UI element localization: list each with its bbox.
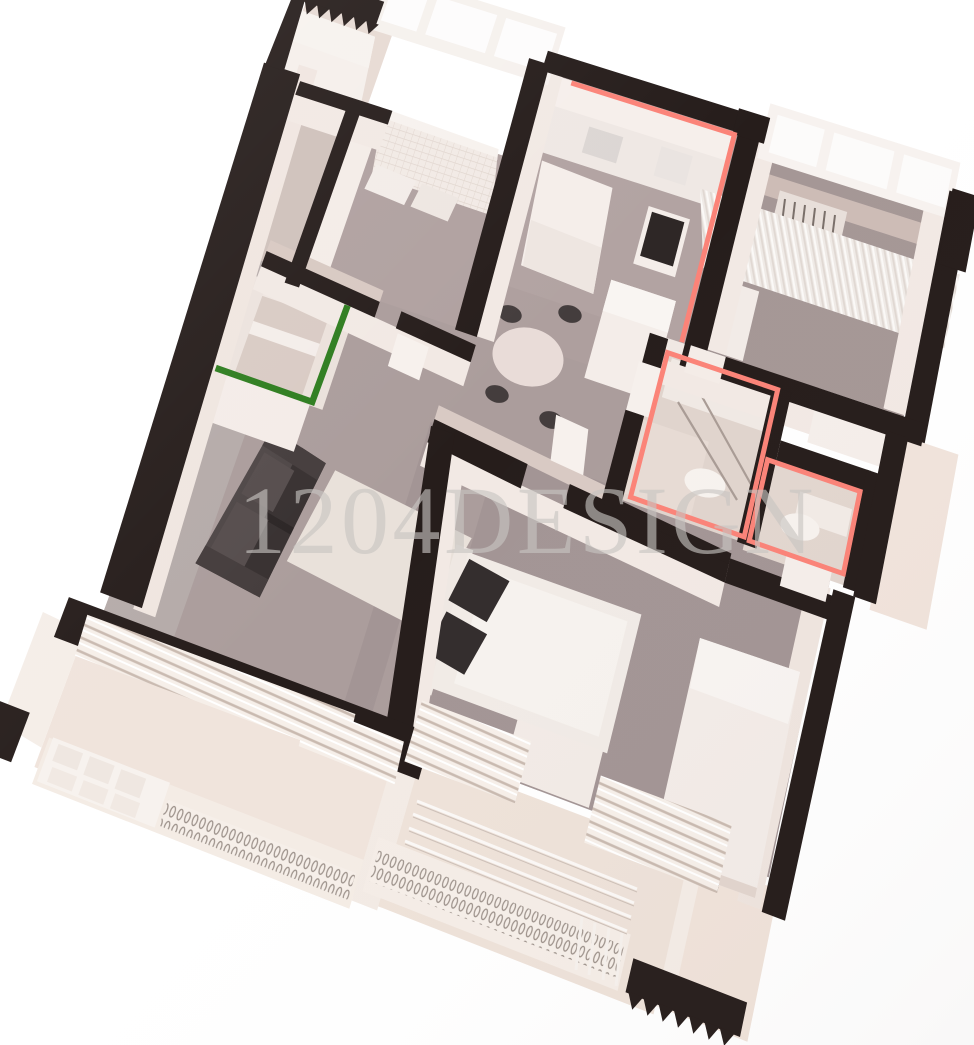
svg-text:1204DESIGN: 1204DESIGN: [238, 467, 817, 574]
